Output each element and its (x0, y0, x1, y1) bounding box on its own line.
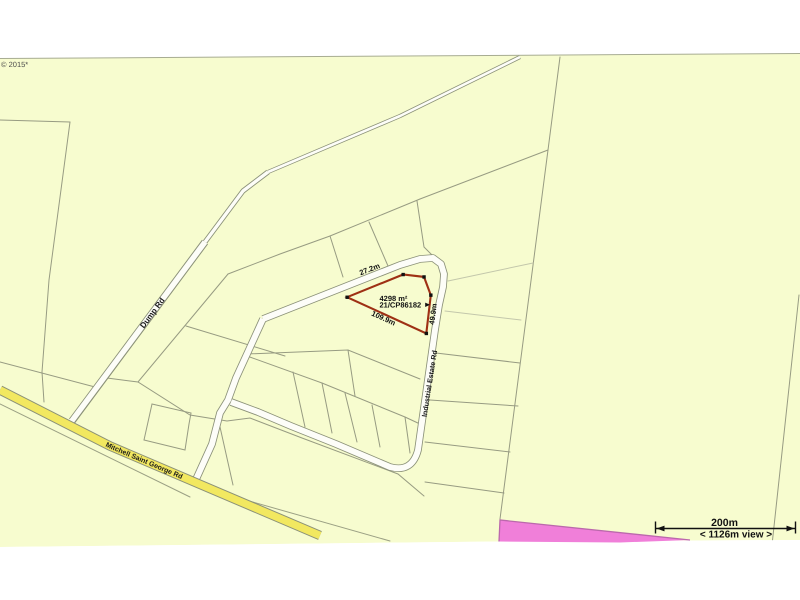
svg-text:21/CP86182: 21/CP86182 (380, 301, 422, 310)
svg-text:© 2015*: © 2015* (1, 60, 28, 69)
svg-text:200m: 200m (711, 517, 738, 529)
svg-text:< 1126m view >: < 1126m view > (700, 530, 772, 541)
